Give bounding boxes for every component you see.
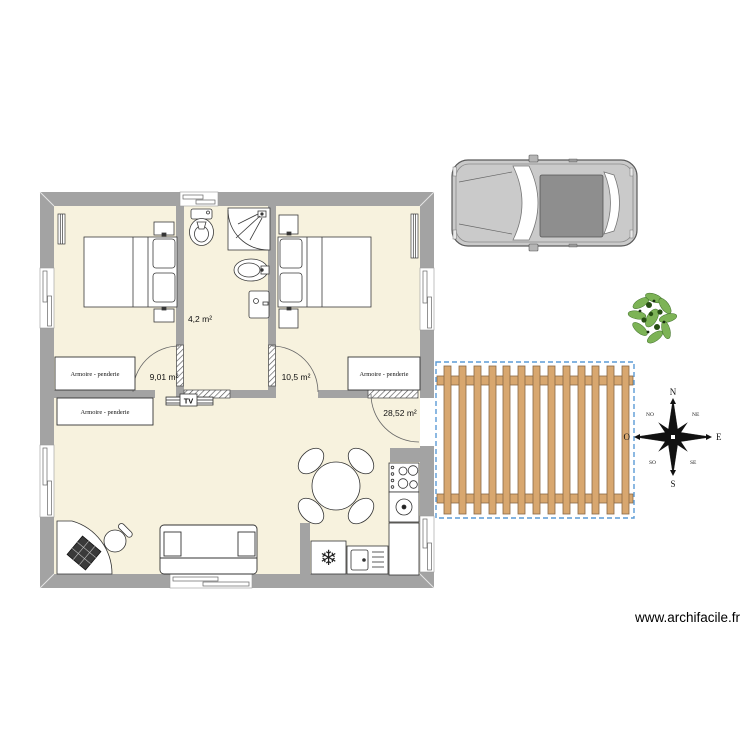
shower[interactable] xyxy=(228,208,270,250)
patio-sliding-door[interactable] xyxy=(170,574,252,588)
compass-label-o: O xyxy=(624,432,631,442)
kitchen-stub-wall xyxy=(300,523,310,574)
kitchen-counter-block xyxy=(390,448,420,462)
taillight xyxy=(630,168,633,176)
radiator-bedroom-right[interactable] xyxy=(411,214,418,258)
wardrobe-bedroom-left[interactable]: Armoire - penderie xyxy=(55,357,135,390)
compass-label-so: SO xyxy=(649,460,656,466)
compass-label-ne: NE xyxy=(692,412,700,418)
wardrobe-label: Armoire - penderie xyxy=(71,371,120,378)
window-bedroom-right[interactable] xyxy=(420,268,434,330)
headlight xyxy=(453,167,457,176)
car[interactable] xyxy=(452,155,637,251)
toilet[interactable] xyxy=(190,209,214,246)
window-bedroom-left[interactable] xyxy=(40,268,54,328)
entry-opening xyxy=(420,398,434,446)
area-label-living[interactable]: 28,52 m² xyxy=(383,408,417,418)
floor-plan-canvas: Armoire - penderie xyxy=(0,0,750,750)
compass-label-s: S xyxy=(670,479,675,489)
car-roof xyxy=(540,175,603,237)
door-leaf-entry[interactable] xyxy=(368,390,418,398)
hob-unit[interactable] xyxy=(389,492,419,522)
pillow xyxy=(280,239,302,268)
compass-label-no: NO xyxy=(646,412,654,418)
wall-h-center xyxy=(230,390,268,398)
radiator-bedroom-left[interactable] xyxy=(58,214,65,244)
compass-label-e: E xyxy=(716,432,722,442)
window-bathroom-top[interactable] xyxy=(180,192,218,206)
desk-chair xyxy=(104,530,126,552)
taillight xyxy=(630,230,633,238)
pillow xyxy=(153,273,175,302)
watermark: www.archifacile.fr xyxy=(634,610,741,625)
stove[interactable] xyxy=(389,463,419,492)
bed-double-right[interactable] xyxy=(278,237,371,307)
mirror xyxy=(529,244,538,251)
wardrobe-bedroom-right[interactable]: Armoire - penderie xyxy=(348,357,420,390)
freezer[interactable]: ❄ xyxy=(311,541,346,574)
wall-h-right xyxy=(318,390,368,398)
pillow xyxy=(280,273,302,302)
water-heater[interactable] xyxy=(249,291,269,318)
window-living-left[interactable] xyxy=(40,445,54,517)
snowflake-icon: ❄ xyxy=(320,546,338,570)
window-kitchen-right[interactable] xyxy=(420,516,434,572)
pillow xyxy=(153,239,175,268)
wall-top xyxy=(40,192,434,206)
bathroom-sink[interactable] xyxy=(234,259,269,281)
compass-label-se: SE xyxy=(690,460,697,466)
bed-double-left[interactable] xyxy=(84,237,177,307)
door-handle xyxy=(569,159,577,162)
compass-label-n: N xyxy=(670,387,677,397)
pergola[interactable] xyxy=(436,362,634,518)
door-leaf-bedroom-right[interactable] xyxy=(269,345,276,386)
wall-junction-right xyxy=(268,386,276,398)
wall-left xyxy=(40,192,54,588)
wall-h-left xyxy=(54,390,155,398)
wardrobe-living[interactable]: Armoire - penderie xyxy=(57,398,153,425)
area-label-bathroom[interactable]: 4,2 m² xyxy=(188,314,212,324)
mirror xyxy=(529,155,538,162)
door-handle xyxy=(569,244,577,247)
headlight xyxy=(453,230,457,239)
wardrobe-label: Armoire - penderie xyxy=(81,409,130,416)
sofa[interactable] xyxy=(160,525,257,574)
tv-label: TV xyxy=(184,397,194,406)
round-table xyxy=(312,462,360,510)
compass-center xyxy=(671,435,675,439)
floor-plan: Armoire - penderie xyxy=(40,192,434,588)
fridge[interactable] xyxy=(389,523,419,575)
area-label-bedroom-left[interactable]: 9,01 m² xyxy=(150,372,179,382)
area-label-bedroom-right[interactable]: 10,5 m² xyxy=(282,372,311,382)
kitchen-sink-unit[interactable] xyxy=(347,546,388,574)
wardrobe-label: Armoire - penderie xyxy=(360,371,409,378)
